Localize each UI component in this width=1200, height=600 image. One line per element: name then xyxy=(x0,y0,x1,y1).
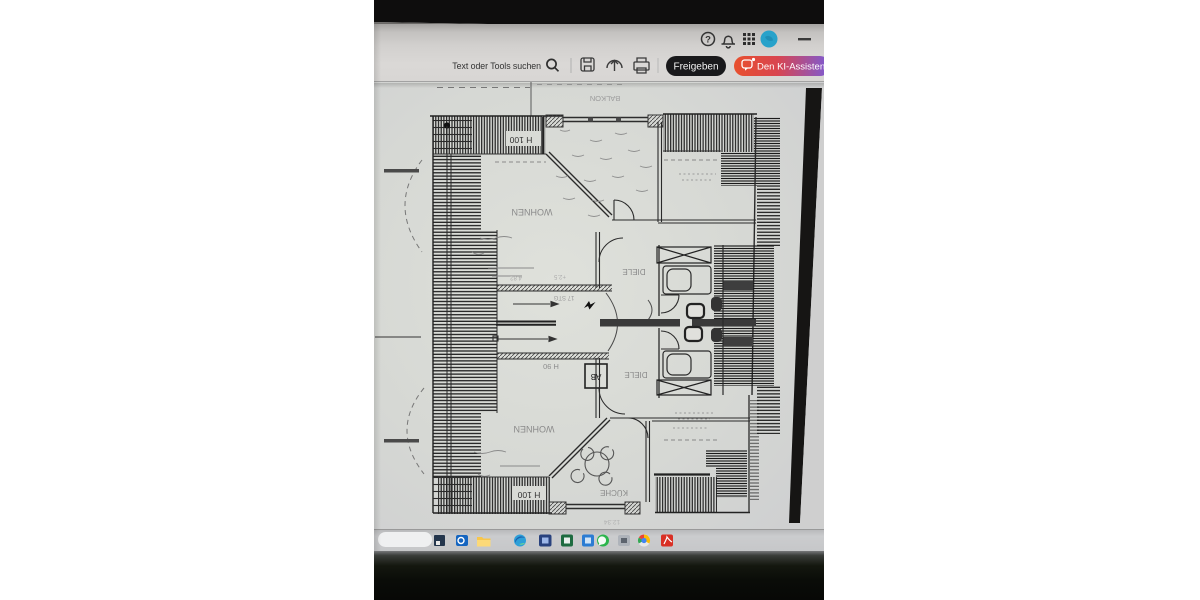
svg-text:Text oder Tools suchen: Text oder Tools suchen xyxy=(452,61,541,71)
svg-text:+2.5: +2.5 xyxy=(553,273,566,279)
svg-text:H 100: H 100 xyxy=(509,135,532,145)
svg-text:WOHNEN: WOHNEN xyxy=(512,207,553,217)
svg-text:DIELE: DIELE xyxy=(622,267,645,276)
svg-text:DIELE: DIELE xyxy=(624,370,647,379)
svg-text:H 90: H 90 xyxy=(543,362,559,371)
svg-text:12.34: 12.34 xyxy=(603,518,620,525)
svg-text:WOHNEN: WOHNEN xyxy=(514,424,555,434)
svg-text:H 100: H 100 xyxy=(517,490,540,500)
svg-text:BALKON: BALKON xyxy=(590,94,620,103)
svg-text:?: ? xyxy=(705,35,711,46)
svg-text:Den KI-Assistent: Den KI-Assistent xyxy=(757,62,824,73)
svg-text:Freigeben: Freigeben xyxy=(673,62,718,73)
svg-text:4.82: 4.82 xyxy=(510,274,522,280)
svg-text:KÜCHE: KÜCHE xyxy=(600,488,628,497)
svg-text:17 STG: 17 STG xyxy=(553,294,574,300)
